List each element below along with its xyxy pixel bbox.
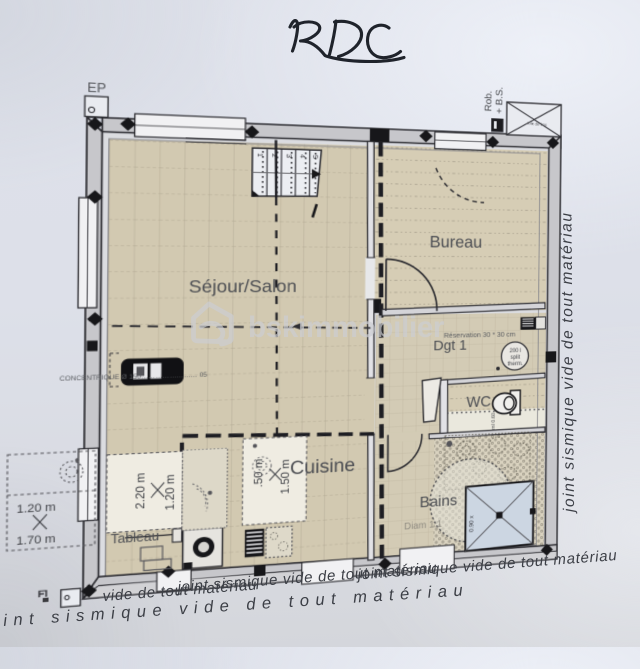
- svg-text:joint sismique vide de tout ma: joint sismique vide de tout matériau: [558, 211, 578, 514]
- svg-text:joint sismique vide de tout ma: joint sismique vide de tout matériau: [355, 547, 618, 584]
- svg-text:bskimmobilier: bskimmobilier: [248, 311, 445, 344]
